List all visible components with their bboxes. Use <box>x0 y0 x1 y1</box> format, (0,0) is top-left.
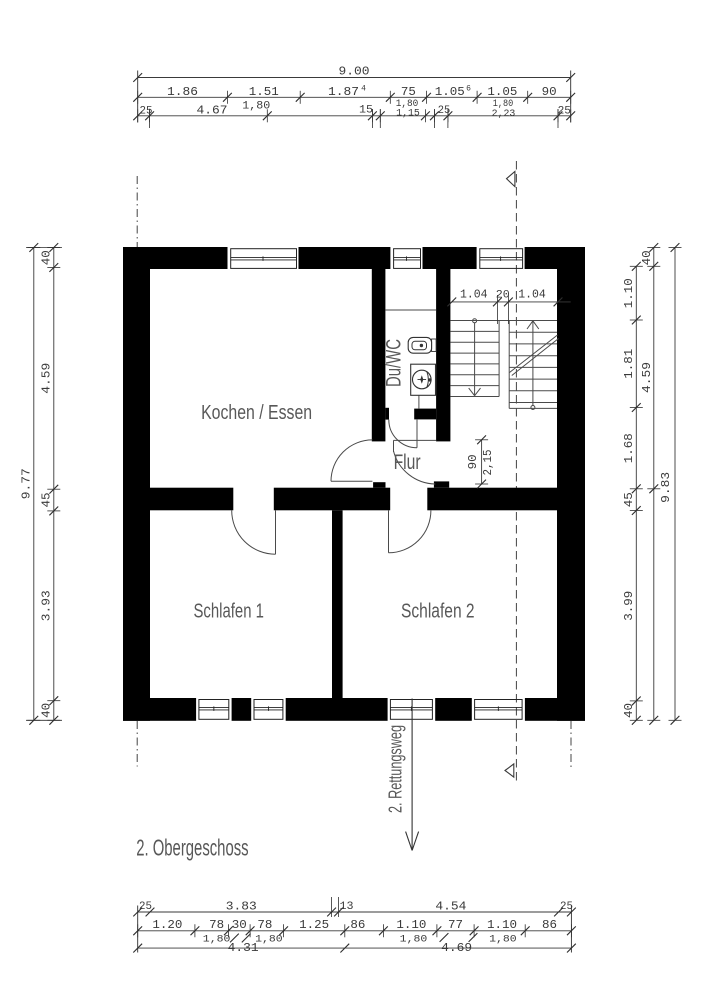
svg-text:4: 4 <box>361 85 366 94</box>
svg-text:1.68: 1.68 <box>622 433 636 463</box>
svg-text:6: 6 <box>466 85 471 94</box>
svg-text:Kochen / Essen: Kochen / Essen <box>201 402 312 424</box>
svg-text:40: 40 <box>40 250 54 265</box>
svg-text:30: 30 <box>232 918 247 932</box>
svg-text:25: 25 <box>558 106 571 118</box>
svg-text:1,15: 1,15 <box>396 108 420 120</box>
svg-text:3.83: 3.83 <box>226 899 257 913</box>
svg-text:1.04: 1.04 <box>460 288 488 302</box>
svg-text:1.10: 1.10 <box>622 278 636 308</box>
svg-text:86: 86 <box>542 918 557 932</box>
svg-text:78: 78 <box>257 918 272 932</box>
svg-text:20: 20 <box>496 290 510 302</box>
svg-text:1.05: 1.05 <box>435 85 465 99</box>
svg-text:4.59: 4.59 <box>640 362 654 393</box>
svg-text:2,23: 2,23 <box>492 108 516 120</box>
svg-text:25: 25 <box>139 901 152 913</box>
svg-text:25: 25 <box>140 106 153 118</box>
svg-text:3.93: 3.93 <box>40 590 54 621</box>
svg-text:4.54: 4.54 <box>435 899 466 913</box>
svg-text:1.04: 1.04 <box>518 288 546 302</box>
svg-text:40: 40 <box>40 703 54 718</box>
svg-text:1,80: 1,80 <box>489 933 517 945</box>
svg-text:4.69: 4.69 <box>441 941 472 955</box>
svg-text:4.59: 4.59 <box>40 363 54 394</box>
svg-text:Du/WC: Du/WC <box>383 339 406 387</box>
svg-text:1.20: 1.20 <box>152 918 182 932</box>
svg-text:1.51: 1.51 <box>249 85 279 99</box>
svg-text:1.81: 1.81 <box>622 349 636 379</box>
svg-text:4.67: 4.67 <box>197 103 228 117</box>
svg-text:77: 77 <box>448 918 463 932</box>
svg-text:1,80: 1,80 <box>242 101 270 113</box>
svg-text:40: 40 <box>622 703 636 718</box>
svg-text:1,80: 1,80 <box>255 933 283 945</box>
svg-text:40: 40 <box>640 250 654 265</box>
svg-text:13: 13 <box>340 901 354 913</box>
svg-text:1,80: 1,80 <box>203 933 231 945</box>
svg-text:1.10: 1.10 <box>396 918 426 932</box>
svg-text:86: 86 <box>350 918 365 932</box>
svg-text:Schlafen 1: Schlafen 1 <box>194 600 264 622</box>
svg-text:1.10: 1.10 <box>487 918 517 932</box>
svg-text:1,80: 1,80 <box>400 933 428 945</box>
svg-text:Schlafen 2: Schlafen 2 <box>401 600 475 622</box>
svg-text:9.00: 9.00 <box>339 65 370 79</box>
svg-text:45: 45 <box>40 493 54 508</box>
svg-text:Flur: Flur <box>394 451 421 474</box>
svg-text:2. Obergeschoss: 2. Obergeschoss <box>136 835 248 861</box>
svg-text:45: 45 <box>622 492 636 507</box>
svg-text:1.87: 1.87 <box>328 85 359 99</box>
svg-text:2. Rettungsweg: 2. Rettungsweg <box>386 725 406 813</box>
svg-text:15: 15 <box>359 104 373 116</box>
svg-text:25: 25 <box>438 105 451 117</box>
svg-text:78: 78 <box>209 918 224 932</box>
svg-text:2,15: 2,15 <box>481 450 495 476</box>
svg-text:1.86: 1.86 <box>167 85 198 99</box>
svg-text:9.83: 9.83 <box>659 472 673 503</box>
svg-text:90: 90 <box>542 85 557 99</box>
svg-text:4.31: 4.31 <box>228 941 259 955</box>
svg-text:9.77: 9.77 <box>20 468 34 499</box>
svg-text:3.99: 3.99 <box>622 591 636 621</box>
svg-text:1.25: 1.25 <box>299 918 329 932</box>
svg-text:25: 25 <box>560 901 573 913</box>
svg-text:90: 90 <box>466 454 480 469</box>
